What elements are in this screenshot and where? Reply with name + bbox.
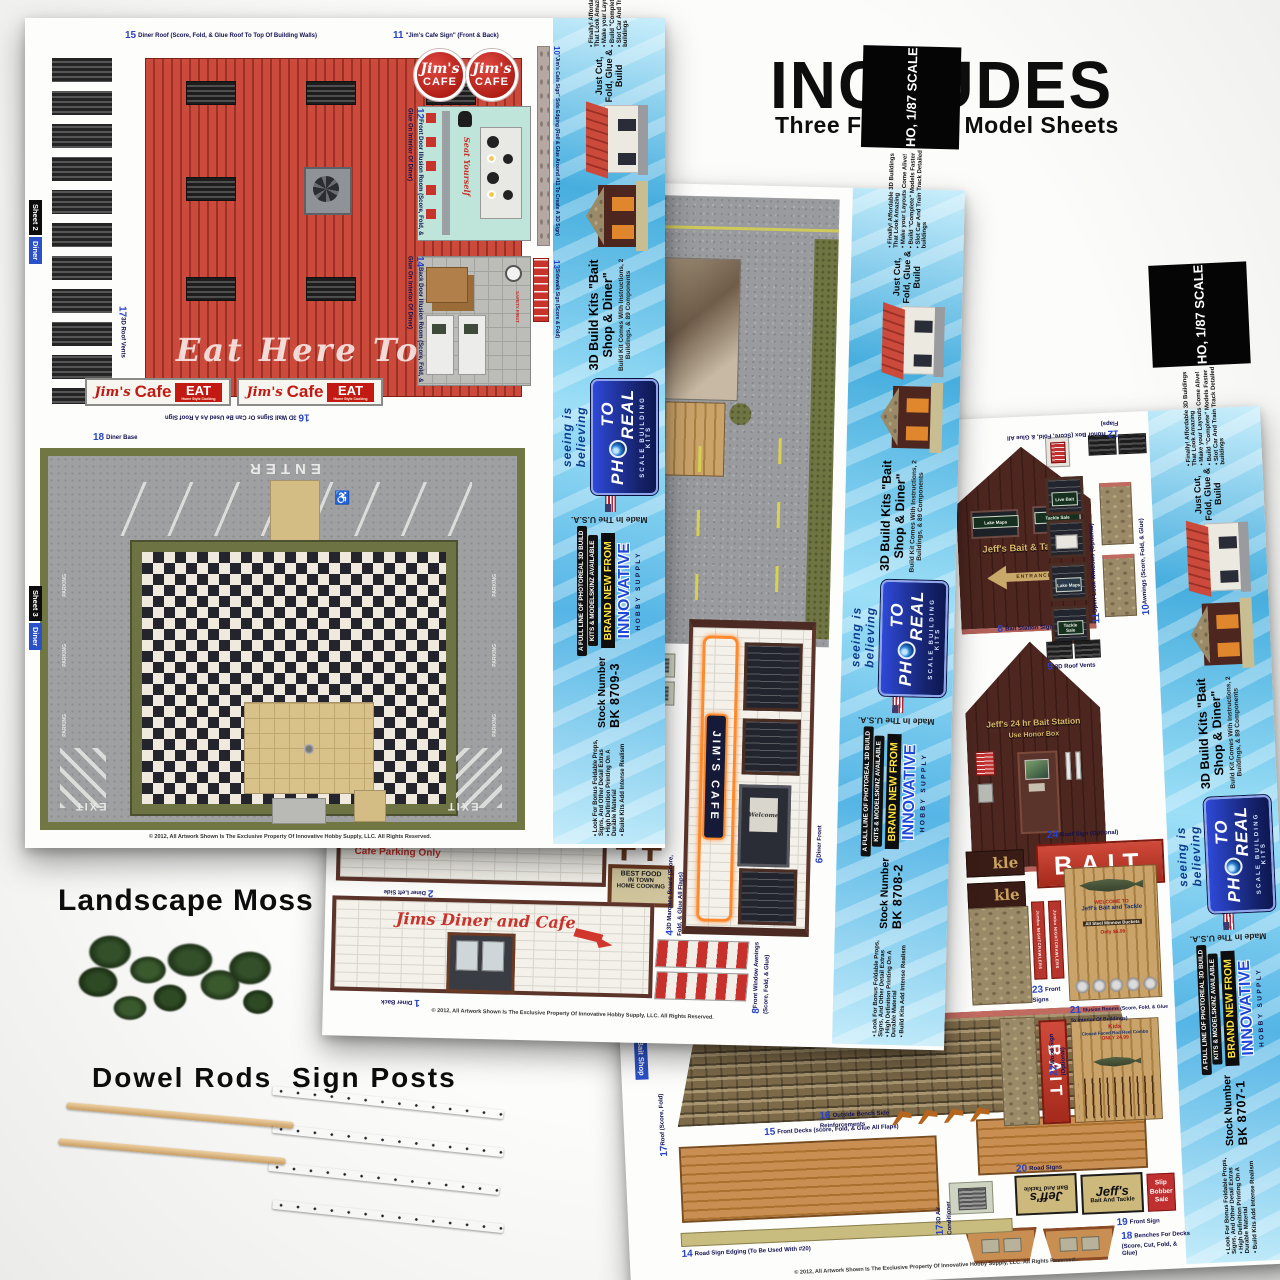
parking-marking: PARKING	[62, 644, 68, 667]
scale-banner: HO, 1/87 SCALE	[1148, 261, 1251, 367]
stock-number: Stock Number BK 8708-2	[878, 858, 906, 930]
post	[1065, 752, 1071, 780]
product-photos	[1170, 521, 1255, 670]
us-flag-icon	[893, 696, 904, 713]
roof-vent	[186, 177, 236, 201]
sign-post	[268, 1162, 500, 1195]
sheet-3-tab: Sheet 3 Diner	[29, 586, 42, 650]
photo-real-logo-block: seeing is believing PHTO REAL SCALE BUIL…	[560, 379, 658, 495]
stone-wall-part	[999, 1017, 1040, 1127]
feature-bullets: Finally! Affordable 3D Buildings That Lo…	[587, 0, 631, 47]
diner-photo	[865, 305, 945, 377]
brand-block: A FULL LINE OF PHOTOREAL 3D BUILD KITS &…	[1196, 941, 1267, 1076]
marketing-spine: Look For Bonus Foldable Props, Signs, An…	[1148, 406, 1280, 1268]
tagline: seeing is believing	[848, 579, 879, 696]
bait-shop-photo	[570, 181, 648, 251]
marketing-spine: Look For Bonus Foldable Props, Signs, An…	[832, 188, 965, 1050]
slip-bobber-sale-sign: SlipBobberSale	[1146, 1173, 1176, 1212]
diner-back-part: Jims Diner and Cafe	[330, 895, 654, 998]
patio	[244, 702, 374, 794]
jims-cafe-round-sign: Jim'sCAFE	[466, 49, 518, 101]
label-front-door-room: 12Front Door Illusion Room (Score, Fold,…	[405, 108, 425, 238]
scale-banner: HO, 1/87 SCALE	[861, 45, 961, 149]
photo-real-logo: PHTO REAL SCALE BUILDING KITS	[1203, 795, 1275, 914]
dowel-rod	[66, 1102, 294, 1129]
sidewalk-sign-part	[533, 258, 549, 322]
bonus-bullets: Look For Bonus Foldable Props, Signs, An…	[1220, 1153, 1260, 1255]
tagline: seeing is believing	[1172, 798, 1205, 915]
label-diner-roof: 15Diner Roof (Score, Fold, & Glue Roof T…	[125, 30, 425, 43]
live-bait-sign: Live Bait	[1051, 491, 1078, 506]
enter-marking: ENTER	[245, 460, 321, 477]
us-flag-icon	[1223, 912, 1235, 929]
made-in-usa: Made In The U.S.A.	[858, 695, 935, 727]
roof-vent-part	[1046, 641, 1073, 660]
patio-drain	[303, 743, 315, 755]
roof-vent	[186, 277, 236, 301]
copyright-line: © 2012, All Artwork Shown Is The Exclusi…	[80, 834, 500, 840]
product-photos	[864, 305, 946, 453]
photo-real-logo-block: seeing is believing PHTO REAL SCALE BUIL…	[848, 579, 949, 697]
honor-box-text: Use Honor Box	[966, 728, 1101, 741]
diner-front-part: JIM'S CAFE Welcome	[682, 619, 817, 937]
landscape-moss-label: Landscape Moss	[58, 884, 314, 918]
door-unit	[458, 315, 486, 375]
kit-title-block: 3D Build Kits "Bait Shop & Diner" Build …	[587, 251, 632, 379]
exit-marking: EXIT	[74, 800, 106, 812]
bonus-bullets: Look For Bonus Foldable Props, Signs, An…	[870, 937, 908, 1038]
jims-diner-script: Jims Diner and Cafe	[396, 909, 576, 932]
roof-vents-strip	[52, 58, 112, 404]
label-diner-base: 18Diner Base	[93, 432, 137, 445]
label-front-sign: 19Front Sign	[1116, 1215, 1160, 1229]
roof-vent	[186, 81, 236, 105]
stone-wall-part	[968, 906, 1032, 1006]
stock-number: Stock Number BK 8709-3	[596, 657, 622, 728]
safety-first-poster: SAFETY FIRST	[515, 291, 520, 323]
fishing-rods	[1078, 1075, 1160, 1119]
dowel-rods-label: Dowel Rods	[92, 1062, 272, 1094]
parking-marking: PARKING	[492, 574, 498, 597]
photo-real-logo-block: seeing is believing PHTO REAL SCALE BUIL…	[1172, 795, 1275, 915]
fish-graphic	[1093, 1053, 1142, 1070]
label-diner-left-side: 2Diner Left Side	[383, 885, 433, 899]
road-sign-part: Jeff'sBait And Tackle	[1080, 1172, 1144, 1215]
label-wood-sign: 22Wood Sign (Optional)	[1046, 1013, 1069, 1076]
minnow-buckets	[1073, 975, 1159, 996]
feature-bullets: Finally! Affordable 3D Buildings That Lo…	[1180, 364, 1228, 466]
front-deck-part	[679, 1135, 940, 1223]
hatch-zone	[456, 748, 502, 808]
camera-lens-icon	[1224, 857, 1243, 876]
welcome-sign: Welcome	[748, 811, 778, 819]
tagline: seeing is believing	[560, 379, 588, 495]
label-diner-front: 6Diner Front	[814, 785, 828, 863]
back-door	[446, 932, 515, 994]
nightcrawlers-sign: Jumbo NIGHTCRAWLERS	[1048, 900, 1065, 979]
label-3d-roof-vents: 173D Roof Vents	[115, 306, 128, 386]
brand-block: A FULL LINE OF PHOTOREAL 3D BUILD KITS &…	[860, 725, 928, 859]
post	[1075, 751, 1081, 779]
sign-post	[272, 1124, 504, 1157]
ac-part	[949, 1181, 994, 1215]
sign-posts-label: Sign Posts	[292, 1062, 457, 1094]
bait-station-text: Jeff's 24 hr Bait Station	[966, 714, 1101, 730]
sign-post	[272, 1200, 504, 1233]
parking-marking: PARKING	[62, 714, 68, 737]
sign-edging-part	[537, 46, 550, 246]
brand-block: A FULL LINE OF PHOTOREAL 3D BUILD KITS &…	[577, 525, 642, 657]
jims-cafe-eat-sign: Jim's Cafe EATHome Style Cooking	[237, 378, 383, 406]
lake-maps-sign: Lake Maps	[1055, 577, 1082, 592]
counter	[442, 111, 450, 235]
station-door	[1017, 750, 1061, 834]
hatch-zone	[60, 748, 106, 808]
photo-real-logo: PHTO REAL SCALE BUILDING KITS	[879, 580, 949, 698]
front-door-room-part: Seat Yourself	[417, 106, 531, 241]
awning-part	[1102, 554, 1137, 617]
handicap-icon: ♿	[334, 490, 350, 506]
label-bench-reinforcements: 16Outside Bench Side Reinforcements	[819, 1106, 930, 1131]
stock-number: Stock Number BK 8707-1	[1221, 1074, 1250, 1146]
illusion-room-part: WELCOME TO Jeff's Bait and Tackle All St…	[1063, 864, 1162, 1001]
label-awnings: 10Awnings (Score, Fold, & Glue)	[1136, 495, 1154, 615]
landscape-moss-photo	[70, 930, 290, 1035]
awning-part	[655, 939, 750, 969]
just-cut-text: Just Cut, Fold, Glue & Build	[891, 248, 922, 307]
tackle-sale-sign: Tackle Sale	[1057, 620, 1084, 635]
parking-marking: PARKING	[62, 574, 68, 597]
road-sign-edging-part	[681, 1218, 1013, 1247]
marketing-spine: Look For Bonus Foldable Props, Signs, An…	[553, 18, 665, 848]
label-road-signs: 20Road Signs	[1016, 1162, 1063, 1177]
made-in-usa: Made In The U.S.A.	[1188, 911, 1266, 944]
tackle-sign-part: kle	[966, 849, 1025, 878]
label-cafe-sign: 11"Jim's Cafe Sign" (Front & Back)	[393, 30, 553, 43]
bait-shop-photo	[864, 381, 944, 453]
boxes	[426, 267, 468, 303]
exit-walk	[272, 798, 326, 824]
awning-part	[1099, 482, 1134, 545]
kit-title-block: 3D Build Kits "Bait Shop & Diner" Build …	[1193, 668, 1244, 798]
lake-maps-sign: Lake Maps	[972, 515, 1018, 529]
label-back-door-room: 14Back Door Illusion Room (Score, Fold, …	[405, 256, 425, 384]
parking-dashes	[774, 438, 782, 638]
buckets-text: All Steel Minnow Buckets	[1083, 919, 1142, 927]
bonus-bullets: Look For Bonus Foldable Props, Signs, An…	[591, 736, 627, 836]
camera-lens-icon	[609, 440, 627, 458]
roof-vent-part	[1074, 639, 1101, 658]
menu-window	[742, 718, 801, 775]
label-front-window-awnings: 8Front Window Awnings (Score, Fold, & Gl…	[751, 942, 773, 1014]
sheet-2-tab: Sheet 2 Diner	[29, 200, 42, 264]
guarantee-sign	[975, 751, 995, 776]
lot-grass-strip	[805, 239, 839, 639]
fish-graphic	[1079, 874, 1144, 897]
tackle-sign-part: kle	[967, 881, 1026, 910]
stove	[480, 127, 522, 219]
camera-lens-icon	[897, 641, 915, 659]
us-flag-icon	[605, 495, 616, 512]
honor-box	[978, 783, 994, 803]
label-sign-edging: 10"Jim's Cafe Sign" Side Edging (Roll & …	[551, 46, 561, 251]
jims-cafe-neon-sign: JIM'S CAFE	[702, 713, 728, 840]
entry-walk	[270, 480, 320, 544]
roof-fan	[304, 167, 352, 215]
roof-vent	[306, 277, 356, 301]
menu-window	[738, 868, 797, 925]
label-3d-roof-vents: 93D Roof Vents	[1047, 659, 1104, 674]
label-illusion-rooms: 21Illusion Rooms (Score, Fold, & Glue To…	[1070, 1000, 1175, 1023]
roof-vent	[306, 81, 356, 105]
bush	[729, 403, 752, 426]
label-marquee-board: 43D Marquee Board (Score, Fold, & Glue A…	[665, 840, 687, 936]
clock	[505, 265, 522, 282]
copyright-line: © 2012, All Artwork Shown Is The Exclusi…	[720, 1254, 1150, 1279]
cook-figure	[458, 111, 472, 127]
price-text: Only $6.99	[1067, 927, 1158, 937]
front-door: Welcome	[737, 784, 791, 867]
label-sidewalk-sign: 13Sidewalk Sign (Score & Fold)	[551, 260, 561, 340]
door-unit	[426, 315, 454, 375]
bait-shop-photo	[1173, 597, 1254, 670]
best-food-sign: BEST FOOD IN TOWN HOME COOKING	[607, 864, 674, 908]
illusion-room-part: Kids Closed Faced Rod Reel Combo ONLY 24…	[1070, 1017, 1163, 1123]
wall-vent-part	[1118, 433, 1147, 454]
exit-marking: EXIT	[446, 800, 478, 812]
label-wall-signs: 163D Wall Signs Or Can Be Used As A Roof…	[165, 410, 310, 423]
diner-base-part: ENTER ♿ PARKING PARKING PARKING PARKING …	[40, 448, 525, 830]
copyright-line: © 2012, All Artwork Shown Is The Exclusi…	[363, 1006, 783, 1022]
nightcrawlers-sign: Jumbo NIGHTCRAWLERS	[1031, 901, 1048, 980]
dowel-rod	[58, 1138, 286, 1165]
small-sign	[1055, 534, 1078, 549]
diner-photo	[570, 105, 648, 175]
menu-window	[743, 642, 803, 711]
product-photos	[570, 105, 648, 251]
jims-cafe-round-sign: Jim'sCAFE	[414, 49, 466, 101]
seat-yourself-text: Seat Yourself	[462, 137, 472, 196]
parking-marking: PARKING	[492, 714, 498, 737]
kit-title-block: 3D Build Kits "Bait Shop & Diner" Build …	[877, 452, 925, 581]
sheet-diner-roof-base: Sheet 2 Diner Sheet 3 Diner 173D Roof Ve…	[25, 18, 665, 848]
made-in-usa: Made In The U.S.A.	[571, 495, 648, 525]
feature-bullets: Finally! Affordable 3D Buildings That Lo…	[886, 148, 932, 249]
awning-part	[654, 971, 749, 1001]
label-front-signs: 23Front Signs	[1032, 983, 1073, 1005]
stools	[426, 113, 436, 231]
diner-photo	[1170, 521, 1251, 594]
label-roof: 17Roof (Score, Fold)	[654, 1051, 671, 1156]
label-air-conditioner: 173D Air Conditioner	[932, 1173, 955, 1236]
red-arrow-icon	[572, 926, 614, 952]
jims-cafe-eat-sign: Jim's Cafe EATHome Style Cooking	[85, 378, 231, 406]
just-cut-text: Just Cut, Fold, Glue & Build	[1191, 465, 1224, 524]
side-pad	[354, 790, 386, 822]
parking-marking: PARKING	[492, 644, 498, 667]
product-image: Bait Shop 17Roof (Score, Fold) 15Front D…	[0, 0, 1280, 1280]
photo-real-logo: PHTO REAL SCALE BUILDING KITS	[591, 379, 658, 495]
just-cut-text: Just Cut, Fold, Glue & Build	[594, 47, 624, 105]
back-door-room-part: SAFETY FIRST	[417, 256, 531, 386]
road-sign-part: Jeff'sBait And Tackle	[1014, 1173, 1078, 1216]
label-roof-sign: 24Roof Sign (Optional)	[1047, 827, 1119, 843]
label-bait-station-sign: 8Bait Station Sign	[997, 622, 1053, 637]
